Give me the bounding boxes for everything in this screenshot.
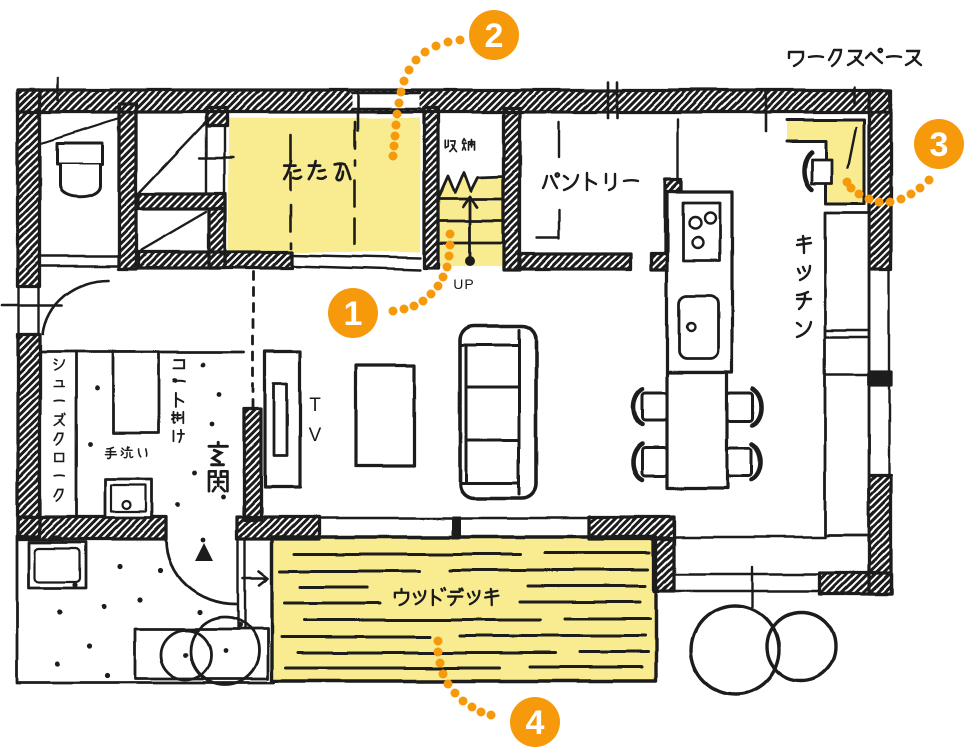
svg-text:V: V [309, 425, 322, 446]
svg-text:UP: UP [453, 276, 474, 292]
svg-text:1: 1 [344, 295, 363, 333]
svg-text:4: 4 [526, 704, 545, 742]
svg-text:T: T [309, 395, 321, 416]
svg-text:3: 3 [930, 126, 949, 164]
svg-text:2: 2 [485, 17, 504, 55]
